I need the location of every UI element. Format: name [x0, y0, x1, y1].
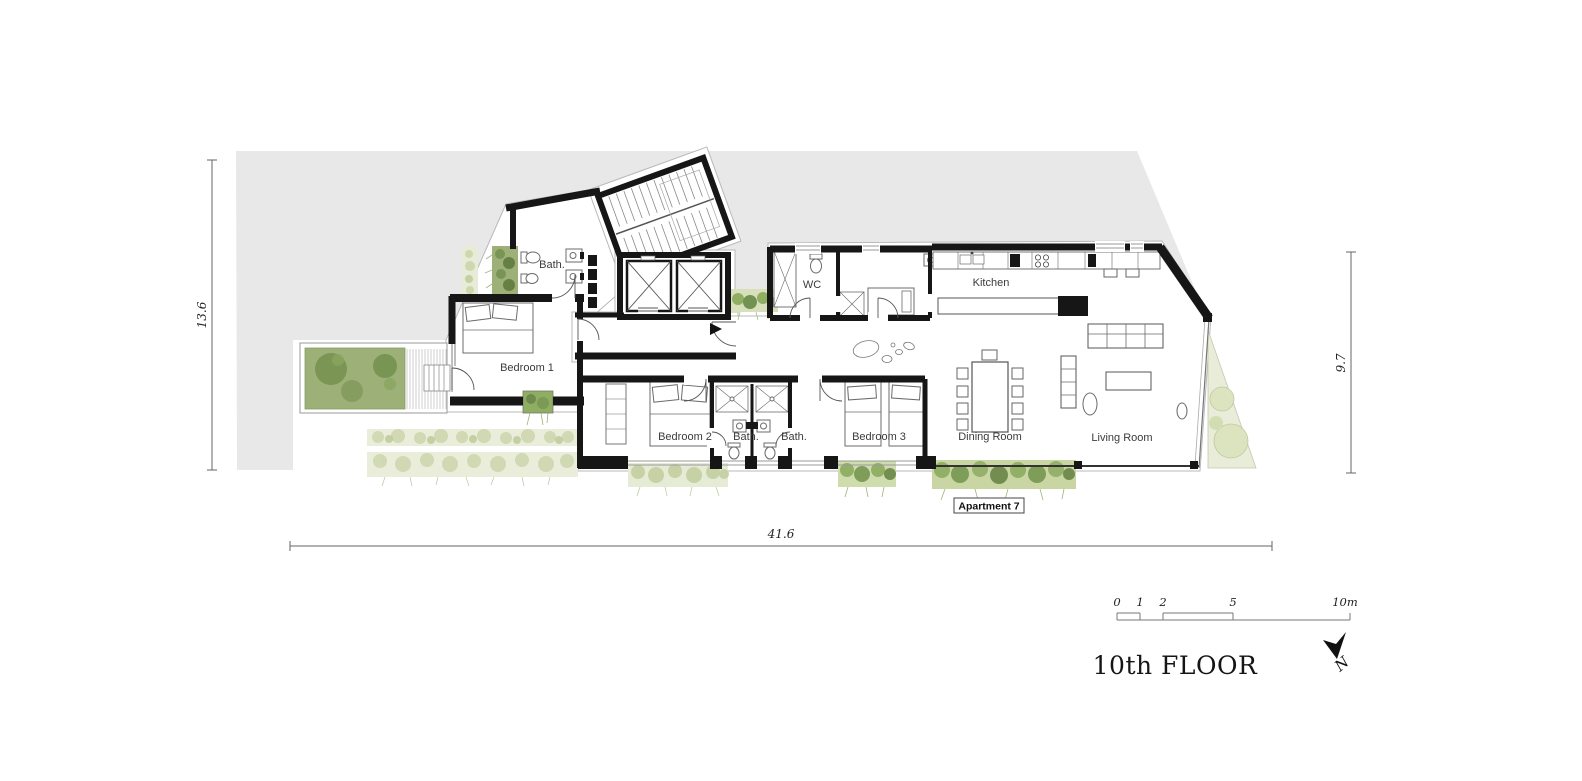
toilet-icon-wc: [810, 254, 822, 273]
room-label-bedroom-2: Bedroom 2: [658, 431, 712, 443]
scale-tick-2: 2: [1158, 595, 1166, 609]
apartment-tag: Apartment 7: [954, 498, 1024, 513]
kitchen-counter: [933, 252, 1160, 270]
room-label-kitchen: Kitchen: [973, 277, 1010, 289]
room-label-bedroom-3: Bedroom 3: [852, 431, 906, 443]
room-label-wc: WC: [803, 279, 821, 291]
planting-lightwell-pale: [462, 246, 478, 296]
bidet-icon-bath-main: [521, 274, 538, 284]
shelf-icon: [1061, 356, 1076, 408]
terrace-east-triangle: [1208, 330, 1256, 468]
kitchen-island: [938, 296, 1088, 316]
planter-band-lower: [367, 452, 578, 486]
room-label-bath-1: Bath.: [733, 431, 759, 443]
planting-bedroom3: [838, 461, 896, 497]
scale-tick-0: 0: [1113, 595, 1120, 609]
room-label-bath-main: Bath.: [539, 259, 565, 271]
dimension-left: 13.6: [195, 160, 217, 470]
shower-icon-bath2: [756, 386, 788, 412]
coffee-table-icon: [1106, 372, 1151, 390]
elevator-shaft-1: [627, 256, 671, 314]
apartment-tag-label: Apartment 7: [958, 501, 1019, 513]
floor-plan-drawing: Bath. Bedroom 1 WC Kitchen Bedroom 2 Bat…: [0, 0, 1582, 781]
sofa-icon: [1088, 324, 1163, 348]
dimension-right: 9.7: [1334, 252, 1356, 473]
dimension-bottom-value: 41.6: [767, 527, 795, 541]
dimension-left-value: 13.6: [195, 301, 209, 328]
shower-icon-utility: [840, 292, 864, 316]
elevator-shaft-2: [677, 256, 721, 314]
terrace-steps: [424, 365, 450, 391]
room-label-bath-2: Bath.: [781, 431, 807, 443]
dimension-bottom: 41.6: [290, 527, 1272, 551]
scale-bar: 0 1 2 5 10m: [1113, 595, 1358, 620]
room-label-bedroom-1: Bedroom 1: [500, 362, 554, 374]
scale-tick-1: 1: [1136, 595, 1143, 609]
wardrobe-icon-bedroom2: [606, 384, 626, 444]
wardrobe-icon-wc: [774, 251, 796, 307]
shower-icon-bath1: [716, 386, 748, 412]
room-label-living-room: Living Room: [1091, 432, 1152, 444]
bed-icon-utility: [868, 288, 914, 315]
toilet-icon-bath2: [764, 443, 776, 459]
north-arrow: N: [1323, 632, 1353, 676]
floor-plan-canvas: Bath. Bedroom 1 WC Kitchen Bedroom 2 Bat…: [0, 0, 1582, 781]
planter-band-upper: [367, 429, 578, 446]
scale-tick-10m: 10m: [1332, 595, 1358, 609]
scale-tick-5: 5: [1229, 595, 1236, 609]
dimension-right-value: 9.7: [1334, 353, 1348, 372]
toilet-icon-bath1: [728, 443, 740, 459]
planting-bedroom1-box: [523, 391, 553, 425]
floor-title: 10th FLOOR: [1093, 651, 1258, 680]
room-label-dining-room: Dining Room: [958, 431, 1022, 443]
bed-icon-bedroom1: [463, 303, 533, 353]
north-label: N: [1330, 652, 1353, 675]
toilet-icon-bath-main: [521, 252, 540, 263]
